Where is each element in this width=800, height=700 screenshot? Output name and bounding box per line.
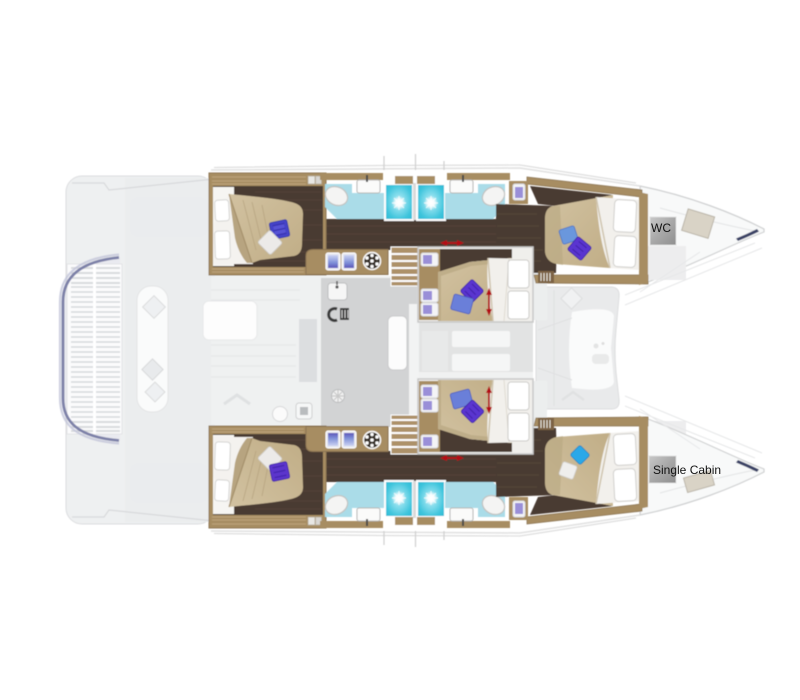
svg-text:Single Cabin: Single Cabin — [653, 463, 721, 477]
svg-text:WC: WC — [651, 221, 671, 235]
